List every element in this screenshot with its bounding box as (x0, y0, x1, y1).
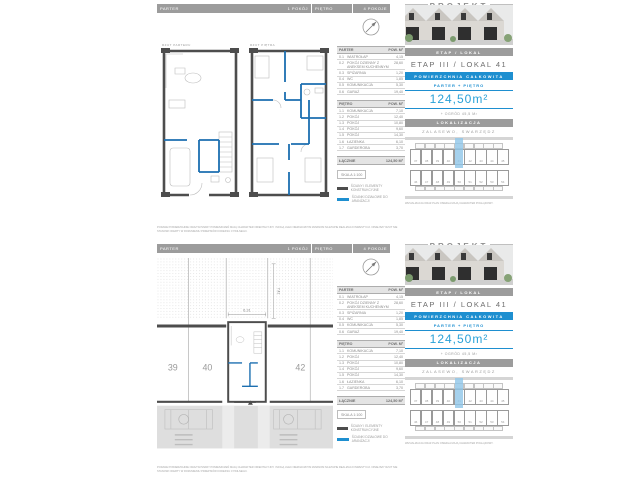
legend-label: ŚCIANKI DZIAŁOWE DO ARANŻACJI (352, 435, 405, 443)
room-area: 14,30 (391, 373, 403, 377)
sheet-site-plan: PARTER 1 POKÓJ PIĘTRO 4 POKOJE PROJEKT Z… (155, 242, 513, 474)
partition-wall-swatch (337, 438, 349, 441)
room-number: 1.6 (339, 140, 345, 144)
houses-photo (405, 245, 513, 285)
room-name: KOMUNIKACJA (347, 109, 389, 113)
minimap-unit-cell: 40 (443, 149, 454, 165)
schedule-column: PARTER POW. M² 0.1 WIATROŁAP 4,15 0.2 PO… (337, 14, 405, 203)
minimap-unit-cell: 44 (486, 149, 497, 165)
header-segment-pietro: PIĘTRO (312, 4, 353, 13)
room-name: KOMUNIKACJA (347, 349, 389, 353)
walls-legend: ŚCIANY I ELEMENTY KONSTRUKCYJNE ŚCIANKI … (337, 424, 405, 443)
floor-plan-parter (161, 48, 239, 198)
location-header-bar: LOKALIZACJA (405, 359, 513, 367)
room-area: 6,10 (391, 140, 403, 144)
header-rooms-left: 1 POKÓJ (288, 246, 308, 251)
plot-number-40: 40 (202, 363, 212, 373)
room-area: 9,60 (391, 367, 403, 371)
room-number: 1.5 (339, 133, 345, 137)
info-column: ETAP / LOKAL ETAP III / LOKAL 41 POWIERZ… (405, 242, 513, 445)
total-area-value: 124,50m² (405, 330, 513, 349)
room-number: 0.5 (339, 83, 345, 87)
minimap-unit-cell: 46 (410, 170, 421, 186)
minimap-unit-cell: 54 (497, 170, 508, 186)
room-name: POKÓJ DZIENNY Z ANEKSEM KUCHENNYM (347, 61, 389, 69)
room-area: 1,85 (391, 317, 403, 321)
etap-lokal-header-bar: ETAP / LOKAL (405, 288, 513, 296)
room-number: 0.2 (339, 301, 345, 305)
partition-wall-swatch (337, 198, 349, 201)
legend-label: ŚCIANY I ELEMENTY KONSTRUKCYJNE (351, 424, 405, 432)
minimap-unit-cell: 47 (421, 170, 432, 186)
legend-label: ŚCIANY I ELEMENTY KONSTRUKCYJNE (351, 184, 405, 192)
floor-plans-area: RZUT PARTERU RZUT PIĘTRA (157, 14, 333, 222)
legend-structural: ŚCIANY I ELEMENTY KONSTRUKCYJNE (337, 424, 405, 432)
header-rooms-right: 4 POKOJE (353, 246, 390, 251)
plan-parter-label: RZUT PARTERU (162, 43, 191, 47)
site-plan-area: 39 40 42 6,31 7,42 5,62 (157, 254, 333, 462)
schedule-rows-pietro: 1.1 KOMUNIKACJA 7,10 1.2 POKÓJ 12,40 1.3… (337, 348, 405, 391)
minimap-unit-cell: 37 (410, 149, 421, 165)
minimap-unit-cell: 38 (421, 389, 432, 405)
minimap-unit-cell: 45 (497, 149, 508, 165)
minimap-unit-cell: 52 (475, 170, 486, 186)
minimap-gardens-row (415, 186, 503, 192)
room-number: 0.5 (339, 323, 345, 327)
schedule-rows-pietro: 1.1 KOMUNIKACJA 7,10 1.2 POKÓJ 12,40 1.3… (337, 108, 405, 151)
room-area: 1,20 (391, 71, 403, 75)
room-number: 1.4 (339, 367, 345, 371)
minimap-unit-cell: 51 (464, 410, 475, 426)
room-name: SPIŻARNIA (347, 311, 389, 315)
room-name: GARAŻ (347, 330, 389, 334)
room-area: 4,15 (391, 55, 403, 59)
schedule-title: PARTER (339, 288, 354, 292)
total-area-value: 124,50m² (405, 90, 513, 109)
header-floor-right: PIĘTRO (315, 246, 333, 251)
plot-number-39: 39 (168, 363, 178, 373)
minimap-unit-cell: 39 (432, 149, 443, 165)
room-area: 28,60 (391, 61, 403, 65)
schedule-area-header: POW. M² (388, 342, 403, 346)
schedule-head-parter: PARTER POW. M² (337, 286, 405, 294)
header-segment-parter: PARTER 1 POKÓJ (157, 244, 312, 253)
floors-line: PARTER + PIĘTRO (405, 323, 513, 328)
room-name: WIATROŁAP (347, 295, 389, 299)
room-area: 19,40 (391, 330, 403, 334)
room-name: GARAŻ (347, 90, 389, 94)
minimap-unit-cell: 53 (486, 410, 497, 426)
dim-depth-label: 7,42 (277, 288, 281, 295)
schedule-area-header: POW. M² (388, 102, 403, 106)
minimap-unit-cell: 49 (443, 170, 454, 186)
north-arrow-icon (360, 256, 382, 278)
minimap-unit-cell: 46 (410, 410, 421, 426)
room-schedule-table: PARTER POW. M² 0.1 WIATROŁAP 4,15 0.2 PO… (337, 46, 405, 203)
total-area-header-bar: POWIERZCHNIA CAŁKOWITA (405, 72, 513, 80)
header-floor-right: PIĘTRO (315, 6, 333, 11)
table-row: 0.2 POKÓJ DZIENNY Z ANEKSEM KUCHENNYM 28… (337, 300, 405, 310)
info-fineprint: WIZUALIZACJA ORAZ PLAN OSIEDLA MAJĄ CHAR… (405, 202, 513, 205)
location-line: ZALASEWO, SWARZĘDZ (405, 129, 513, 134)
room-name: WC (347, 77, 389, 81)
schedule-head-parter: PARTER POW. M² (337, 46, 405, 54)
room-area: 5,30 (391, 83, 403, 87)
plot-number-42: 42 (295, 363, 305, 373)
etap-lokal-header-bar: ETAP / LOKAL (405, 48, 513, 56)
schedule-rows-parter: 0.1 WIATROŁAP 4,15 0.2 POKÓJ DZIENNY Z A… (337, 294, 405, 335)
room-name: POKÓJ (347, 133, 389, 137)
legend-partition: ŚCIANKI DZIAŁOWE DO ARANŻACJI (337, 435, 405, 443)
room-name: ŁAZIENKA (347, 380, 389, 384)
room-area: 14,30 (391, 133, 403, 137)
brochure-page: PARTER 1 POKÓJ PIĘTRO 4 POKOJE PROJEKT Z… (0, 0, 640, 480)
room-name: GARDEROBA (347, 386, 389, 390)
minimap-unit-cell: 47 (421, 410, 432, 426)
structural-wall-swatch (337, 427, 348, 430)
minimap-unit-cell: 48 (432, 410, 443, 426)
sheet-fineprint: PODANE POWIERZCHNIE ORAZ WYMIARY POMIESZ… (157, 226, 401, 233)
total-label: ŁĄCZNIE (339, 399, 355, 403)
structural-wall-swatch (337, 187, 348, 190)
minimap-unit-cell: 50 (454, 410, 465, 426)
room-number: 0.4 (339, 77, 345, 81)
room-area: 28,60 (391, 301, 403, 305)
minimap-unit-cell: 45 (497, 389, 508, 405)
room-area: 7,10 (391, 109, 403, 113)
minimap-unit-cell: 43 (475, 149, 486, 165)
room-area: 3,70 (391, 146, 403, 150)
room-name: KOMUNIKACJA (347, 323, 389, 327)
sheet-header-bar: PARTER 1 POKÓJ PIĘTRO 4 POKOJE (157, 244, 390, 253)
room-area: 19,40 (391, 90, 403, 94)
dim-width-label: 6,31 (243, 307, 251, 312)
schedule-area-header: POW. M² (388, 48, 403, 52)
table-row: 0.2 POKÓJ DZIENNY Z ANEKSEM KUCHENNYM 28… (337, 60, 405, 70)
minimap-unit-cell: 37 (410, 389, 421, 405)
room-name: POKÓJ (347, 361, 389, 365)
north-arrow-icon (360, 16, 382, 38)
garden-area-line: + OGRÓD 45,5 M² (405, 352, 513, 356)
minimap-road-bottom (405, 436, 513, 439)
room-number: 0.3 (339, 71, 345, 75)
estate-minimap: 373839404142434445 464748495051525354 (405, 137, 513, 199)
minimap-unit-cell: 42 (464, 149, 475, 165)
minimap-unit-cell: 48 (432, 170, 443, 186)
total-value: 124,50 M² (386, 159, 403, 163)
total-value: 124,50 M² (386, 399, 403, 403)
scale-box: SKALA 1:100 (337, 170, 366, 179)
walls-legend: ŚCIANY I ELEMENTY KONSTRUKCYJNE ŚCIANKI … (337, 184, 405, 203)
minimap-unit-cell: 50 (454, 170, 465, 186)
room-number: 1.5 (339, 373, 345, 377)
room-area: 7,10 (391, 349, 403, 353)
minimap-unit-cell: 42 (464, 389, 475, 405)
header-segment-parter: PARTER 1 POKÓJ (157, 4, 312, 13)
room-number: 0.4 (339, 317, 345, 321)
room-area: 5,30 (391, 323, 403, 327)
room-schedule-table: PARTER POW. M² 0.1 WIATROŁAP 4,15 0.2 PO… (337, 286, 405, 443)
header-rooms-left: 1 POKÓJ (288, 6, 308, 11)
room-area: 3,70 (391, 386, 403, 390)
info-fineprint: WIZUALIZACJA ORAZ PLAN OSIEDLA MAJĄ CHAR… (405, 442, 513, 445)
minimap-bottom-row: 464748495051525354 (410, 170, 508, 186)
schedule-rows-parter: 0.1 WIATROŁAP 4,15 0.2 POKÓJ DZIENNY Z A… (337, 54, 405, 95)
room-name: ŁAZIENKA (347, 140, 389, 144)
minimap-highlighted-unit (455, 138, 464, 168)
total-area-bar: ŁĄCZNIE 124,50 M² (337, 156, 405, 165)
table-row: 1.7 GARDEROBA 3,70 (337, 385, 405, 391)
schedule-title: PIĘTRO (339, 342, 352, 346)
room-number: 1.4 (339, 127, 345, 131)
header-rooms-right: 4 POKOJE (353, 6, 390, 11)
info-column: ETAP / LOKAL ETAP III / LOKAL 41 POWIERZ… (405, 2, 513, 205)
total-area-header-bar: POWIERZCHNIA CAŁKOWITA (405, 312, 513, 320)
room-name: POKÓJ (347, 121, 389, 125)
room-number: 0.1 (339, 55, 345, 59)
room-number: 1.2 (339, 355, 345, 359)
scale-box: SKALA 1:100 (337, 410, 366, 419)
room-area: 1,85 (391, 77, 403, 81)
schedule-title: PARTER (339, 48, 354, 52)
room-name: WC (347, 317, 389, 321)
minimap-unit-cell: 40 (443, 389, 454, 405)
room-name: POKÓJ (347, 115, 389, 119)
room-name: POKÓJ DZIENNY Z ANEKSEM KUCHENNYM (347, 301, 389, 309)
location-header-bar: LOKALIZACJA (405, 119, 513, 127)
room-name: SPIŻARNIA (347, 71, 389, 75)
room-name: POKÓJ (347, 127, 389, 131)
minimap-road-bottom (405, 196, 513, 199)
room-name: WIATROŁAP (347, 55, 389, 59)
room-number: 0.1 (339, 295, 345, 299)
garden-area-line: + OGRÓD 45,5 M² (405, 112, 513, 116)
room-area: 1,20 (391, 311, 403, 315)
minimap-unit-cell: 52 (475, 410, 486, 426)
header-floor-left: PARTER (160, 246, 179, 251)
room-area: 12,40 (391, 355, 403, 359)
total-label: ŁĄCZNIE (339, 159, 355, 163)
room-number: 1.7 (339, 386, 345, 390)
total-area-bar: ŁĄCZNIE 124,50 M² (337, 396, 405, 405)
room-number: 1.7 (339, 146, 345, 150)
site-plan-drawing: 39 40 42 6,31 7,42 5,62 (157, 258, 333, 464)
room-number: 1.2 (339, 115, 345, 119)
table-row: 1.7 GARDEROBA 3,70 (337, 145, 405, 151)
minimap-bottom-row: 464748495051525354 (410, 410, 508, 426)
room-name: GARDEROBA (347, 146, 389, 150)
room-number: 0.6 (339, 90, 345, 94)
room-name: POKÓJ (347, 367, 389, 371)
room-number: 0.3 (339, 311, 345, 315)
room-area: 4,15 (391, 295, 403, 299)
room-area: 10,80 (391, 361, 403, 365)
room-number: 1.1 (339, 109, 345, 113)
room-number: 0.6 (339, 330, 345, 334)
minimap-unit-cell: 43 (475, 389, 486, 405)
room-area: 10,80 (391, 121, 403, 125)
minimap-unit-cell: 44 (486, 389, 497, 405)
minimap-unit-cell: 53 (486, 170, 497, 186)
header-segment-pietro: PIĘTRO (312, 244, 353, 253)
room-area: 9,60 (391, 127, 403, 131)
room-number: 1.1 (339, 349, 345, 353)
location-line: ZALASEWO, SWARZĘDZ (405, 369, 513, 374)
minimap-unit-cell: 51 (464, 170, 475, 186)
legend-structural: ŚCIANY I ELEMENTY KONSTRUKCYJNE (337, 184, 405, 192)
estate-minimap: 373839404142434445 464748495051525354 (405, 377, 513, 439)
room-number: 1.3 (339, 121, 345, 125)
minimap-unit-cell: 54 (497, 410, 508, 426)
header-floor-left: PARTER (160, 6, 179, 11)
legend-partition: ŚCIANKI DZIAŁOWE DO ARANŻACJI (337, 195, 405, 203)
room-area: 12,40 (391, 115, 403, 119)
floors-line: PARTER + PIĘTRO (405, 83, 513, 88)
plan-pietro-label: RZUT PIĘTRA (250, 43, 275, 47)
minimap-unit-cell: 38 (421, 149, 432, 165)
houses-photo (405, 5, 513, 45)
room-area: 6,10 (391, 380, 403, 384)
room-number: 0.2 (339, 61, 345, 65)
room-number: 1.3 (339, 361, 345, 365)
minimap-gardens-row (415, 426, 503, 432)
room-number: 1.6 (339, 380, 345, 384)
sheet-floor-plans: PARTER 1 POKÓJ PIĘTRO 4 POKOJE PROJEKT Z… (155, 2, 513, 234)
room-name: POKÓJ (347, 355, 389, 359)
minimap-unit-cell: 39 (432, 389, 443, 405)
etap-lokal-title: ETAP III / LOKAL 41 (405, 60, 513, 69)
schedule-title: PIĘTRO (339, 102, 352, 106)
minimap-highlighted-unit (455, 378, 464, 408)
schedule-head-pietro: PIĘTRO POW. M² (337, 100, 405, 108)
sheet-fineprint: PODANE POWIERZCHNIE ORAZ WYMIARY POMIESZ… (157, 466, 401, 473)
minimap-unit-cell: 49 (443, 410, 454, 426)
room-name: POKÓJ (347, 373, 389, 377)
schedule-head-pietro: PIĘTRO POW. M² (337, 340, 405, 348)
schedule-column: PARTER POW. M² 0.1 WIATROŁAP 4,15 0.2 PO… (337, 254, 405, 443)
floor-plan-pietro (249, 48, 329, 198)
schedule-area-header: POW. M² (388, 288, 403, 292)
etap-lokal-title: ETAP III / LOKAL 41 (405, 300, 513, 309)
legend-label: ŚCIANKI DZIAŁOWE DO ARANŻACJI (352, 195, 405, 203)
sheet-header-bar: PARTER 1 POKÓJ PIĘTRO 4 POKOJE (157, 4, 390, 13)
room-name: KOMUNIKACJA (347, 83, 389, 87)
